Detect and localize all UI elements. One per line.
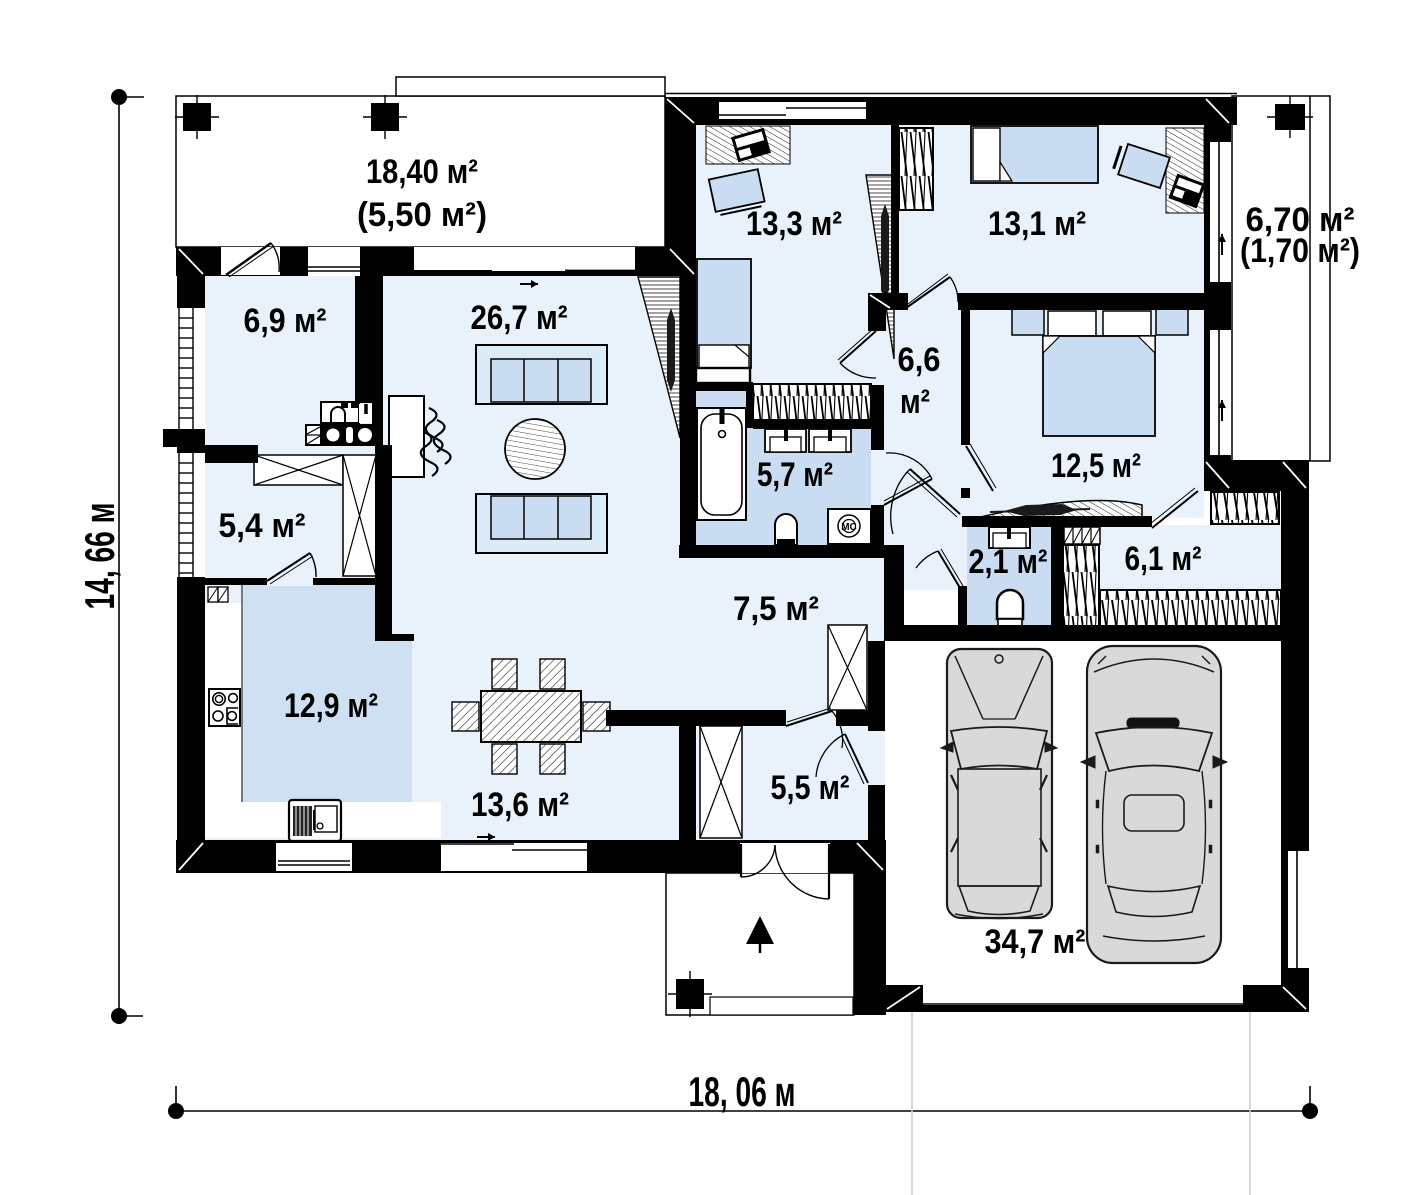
svg-text:26,7 м²: 26,7 м² [471, 299, 568, 337]
svg-text:5,7 м²: 5,7 м² [757, 456, 833, 494]
svg-text:2,1 м²: 2,1 м² [969, 543, 1048, 581]
svg-text:6,6: 6,6 [898, 341, 941, 379]
svg-text:12,9 м²: 12,9 м² [284, 687, 378, 725]
svg-text:13,6 м²: 13,6 м² [471, 786, 569, 824]
svg-text:5,5 м²: 5,5 м² [771, 769, 850, 807]
svg-text:МС: МС [841, 522, 857, 533]
svg-text:5,4 м²: 5,4 м² [219, 507, 306, 545]
svg-text:6,1 м²: 6,1 м² [1125, 540, 1202, 578]
svg-text:13,3 м²: 13,3 м² [746, 205, 842, 243]
svg-text:14, 66 м: 14, 66 м [76, 503, 123, 610]
svg-text:6,9 м²: 6,9 м² [244, 302, 327, 340]
svg-text:(5,50 м²): (5,50 м²) [357, 196, 487, 234]
svg-text:7,5 м²: 7,5 м² [733, 590, 819, 628]
svg-text:18, 06 м: 18, 06 м [689, 1068, 796, 1115]
svg-text:13,1 м²: 13,1 м² [988, 205, 1086, 243]
svg-text:34,7 м²: 34,7 м² [985, 923, 1086, 961]
svg-text:18,40 м²: 18,40 м² [366, 153, 478, 191]
svg-text:м²: м² [900, 383, 930, 421]
svg-text:(1,70 м²): (1,70 м²) [1240, 232, 1360, 270]
svg-text:12,5 м²: 12,5 м² [1051, 447, 1141, 485]
